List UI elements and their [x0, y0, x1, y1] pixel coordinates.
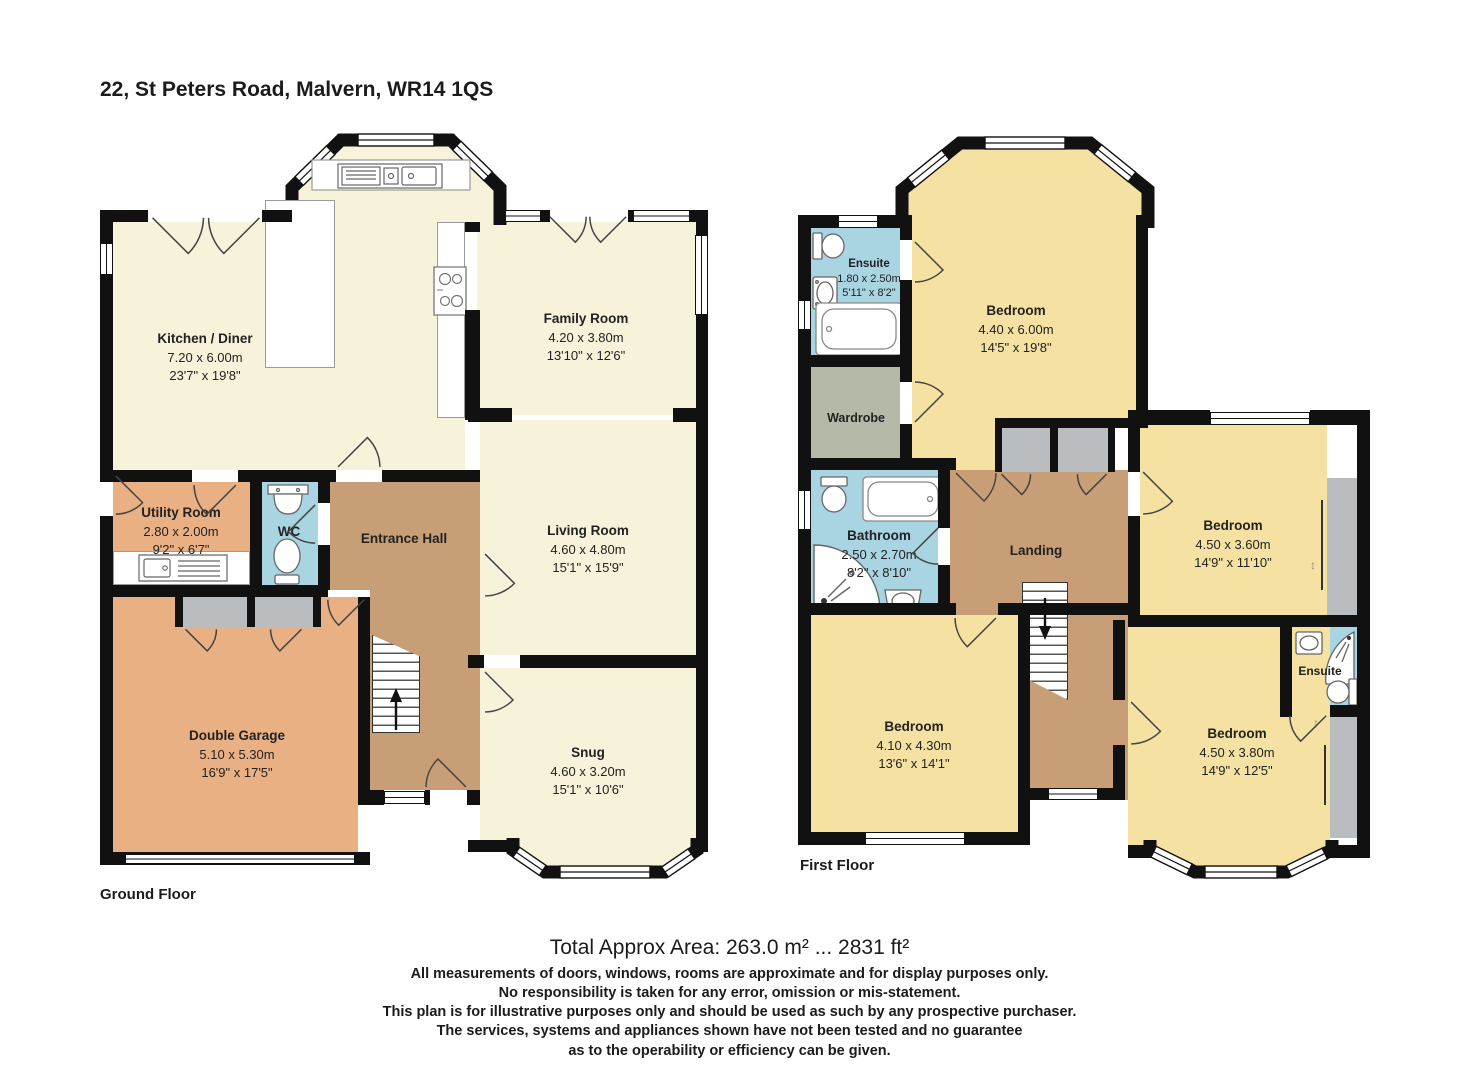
wall [690, 210, 708, 222]
wall [878, 215, 902, 228]
wall [175, 585, 321, 597]
door-arc [424, 746, 468, 790]
wall [798, 215, 811, 300]
wall [1113, 745, 1125, 800]
wall [468, 408, 512, 422]
window [798, 490, 811, 530]
wall [100, 516, 113, 865]
wall [950, 603, 956, 615]
hob-icon [433, 266, 467, 316]
door-arc [206, 214, 262, 270]
first-floor-label: First Floor [800, 857, 874, 874]
wall [1280, 615, 1292, 705]
wall [1128, 615, 1290, 627]
window [1048, 788, 1098, 800]
wall [1357, 410, 1370, 858]
door-arc [482, 552, 528, 598]
wall [950, 458, 956, 470]
wall [798, 832, 865, 845]
stairs-up-arrow [388, 688, 404, 732]
wall [425, 790, 430, 805]
room-garage [113, 597, 358, 852]
door-arc [901, 526, 941, 566]
label-garage: Double Garage5.10 x 5.30m16'9" x 17'5" [189, 727, 285, 782]
wall [1128, 410, 1140, 472]
door-arc [482, 670, 526, 714]
wall [100, 210, 113, 243]
wall [520, 655, 708, 668]
wall [465, 222, 480, 232]
wall [468, 840, 513, 852]
sliding-door-line [1321, 500, 1323, 590]
wall [1050, 428, 1058, 472]
window [798, 300, 811, 330]
ensuite2-basin-icon [1295, 631, 1323, 655]
wall [995, 418, 1128, 428]
label-ensuite2: Ensuite [1298, 663, 1341, 680]
window [838, 215, 878, 228]
door-arc [269, 627, 303, 661]
wall [1136, 215, 1148, 428]
floorplan-canvas: 22, St Peters Road, Malvern, WR14 1QS [0, 0, 1459, 1080]
label-family: Family Room4.20 x 3.80m13'10" x 12'6" [544, 310, 629, 365]
door-arc [548, 214, 588, 254]
wall [262, 210, 292, 222]
label-bedroom2: Bedroom4.10 x 4.30m13'6" x 14'1" [876, 718, 951, 773]
cupboard [1058, 428, 1108, 472]
wardrobe-strip-bedroom3 [1327, 478, 1357, 627]
ensuite1-bath-icon [815, 302, 903, 356]
wall [467, 790, 480, 805]
window [1210, 412, 1310, 425]
window [505, 210, 541, 222]
door-arc [192, 482, 238, 528]
window [384, 791, 425, 804]
wall [798, 458, 950, 470]
wardrobe-strip-bedroom4 [1330, 715, 1357, 838]
wall [468, 655, 484, 668]
door-arc [588, 214, 628, 254]
wall [1290, 615, 1357, 627]
wall [938, 470, 950, 528]
wall [696, 222, 708, 235]
cupboard [255, 597, 313, 627]
wall [900, 280, 912, 357]
footer-disclaimer: Total Approx Area: 263.0 m² ... 2831 ft²… [0, 936, 1459, 1061]
wall [247, 597, 255, 627]
wall [1030, 788, 1048, 800]
door-arc [953, 615, 998, 660]
window [695, 235, 708, 315]
door-arc [1000, 472, 1032, 504]
total-area-text: Total Approx Area: 263.0 m² ... 2831 ft² [0, 936, 1459, 960]
label-bedroom1: Bedroom4.40 x 6.00m14'5" x 19'8" [978, 302, 1053, 357]
bathroom-toilet-icon [815, 476, 855, 516]
wall [697, 840, 708, 852]
kitchen-sink-icon [338, 164, 442, 188]
wall [1330, 705, 1357, 717]
door-arc [184, 627, 218, 661]
kitchen-island [265, 200, 335, 368]
door-arc [336, 424, 382, 470]
window [100, 243, 113, 275]
kitchen-counter [437, 222, 465, 418]
window [633, 210, 690, 222]
sliding-door-arrow-icon: ↕ [1310, 558, 1316, 572]
cupboard [183, 597, 247, 627]
bedroom4-bay-window [1143, 840, 1339, 880]
door-arc [1076, 472, 1108, 504]
wall [313, 597, 321, 627]
wall [382, 470, 480, 482]
label-hall: Entrance Hall [361, 530, 447, 549]
page-title: 22, St Peters Road, Malvern, WR14 1QS [100, 78, 493, 102]
wall [995, 428, 1002, 472]
wall [673, 408, 708, 422]
wall [175, 597, 183, 627]
door-arc [1128, 700, 1174, 746]
wall [900, 355, 912, 382]
door-arc [150, 214, 206, 270]
window [865, 832, 965, 845]
wall [318, 545, 330, 590]
wall [798, 355, 905, 367]
wall [1128, 845, 1152, 858]
wall [998, 603, 1128, 615]
wall [321, 585, 328, 597]
wall [696, 315, 708, 852]
window [125, 854, 355, 864]
wall [1018, 615, 1030, 845]
wall [318, 482, 330, 503]
wall [100, 585, 175, 597]
wall [250, 482, 262, 585]
door-arc [1288, 713, 1328, 753]
snug-bay-window [505, 838, 705, 880]
wall [1330, 845, 1370, 858]
wall [465, 310, 480, 420]
wall [1113, 620, 1125, 700]
door-arc [1140, 470, 1186, 516]
label-snug: Snug4.60 x 3.20m15'1" x 10'6" [550, 744, 625, 799]
door-arc [326, 597, 366, 637]
bedroom1-bay-window [890, 133, 1160, 228]
sliding-door-line [1324, 745, 1326, 805]
label-landing: Landing [1010, 542, 1063, 561]
label-ensuite1: Ensuite1.80 x 2.50m5'11" x 8'2" [837, 256, 901, 301]
wall [358, 790, 384, 805]
door-arc [954, 470, 998, 514]
door-arc [113, 474, 155, 516]
wall [1108, 428, 1115, 472]
ensuite2-toilet-icon [1326, 678, 1358, 706]
wall [900, 215, 912, 240]
wall [100, 275, 113, 474]
ground-floor-label: Ground Floor [100, 886, 196, 903]
label-bedroom4: Bedroom4.50 x 3.80m14'9" x 12'5" [1199, 725, 1274, 780]
door-arc [276, 503, 318, 545]
bathroom-bath-icon [862, 476, 944, 522]
wall [1128, 516, 1140, 615]
cupboard [1002, 428, 1050, 472]
wall [798, 603, 950, 615]
label-living: Living Room4.60 x 4.80m15'1" x 15'9" [547, 522, 629, 577]
wall [1136, 410, 1210, 425]
door-arc [912, 240, 956, 284]
label-bedroom3: Bedroom4.50 x 3.60m14'9" x 11'10" [1194, 517, 1272, 572]
wall [798, 530, 811, 832]
label-wardrobe: Wardrobe [827, 410, 885, 428]
wall [238, 470, 336, 482]
door-arc [912, 380, 956, 424]
label-kitchen: Kitchen / Diner7.20 x 6.00m23'7" x 19'8" [157, 330, 252, 385]
